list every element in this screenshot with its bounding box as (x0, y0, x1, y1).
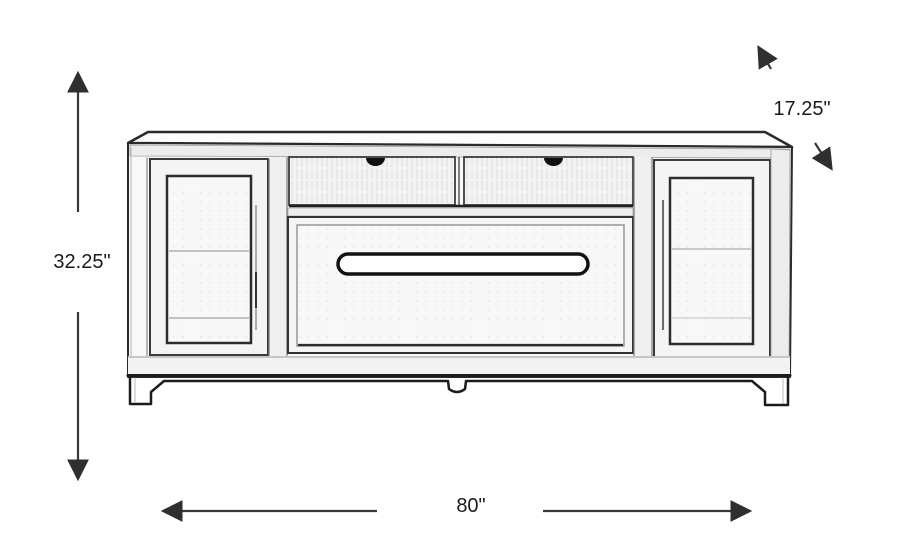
dimension-diagram: 32.25" 17.25" 80" (0, 0, 900, 550)
height-dimension-label: 32.25" (42, 251, 122, 273)
cabinet-base (128, 356, 790, 405)
left-glass-door (150, 159, 268, 355)
media-drawer-panel (297, 225, 624, 346)
right-door-glass (670, 178, 753, 344)
media-drawer-slot-handle (338, 254, 588, 274)
depth-arrow-up-left (759, 48, 771, 69)
media-drawer (288, 217, 633, 353)
apron-and-legs (130, 377, 788, 405)
left-divider-stile (269, 157, 287, 375)
depth-dimension-label: 17.25" (760, 98, 844, 120)
right-side-panel (771, 149, 790, 376)
width-dimension-label: 80" (434, 495, 508, 517)
tv-console-drawing (0, 0, 900, 550)
depth-arrow-down-right (815, 143, 831, 168)
right-glass-door (654, 160, 770, 357)
right-divider-stile (634, 157, 652, 377)
